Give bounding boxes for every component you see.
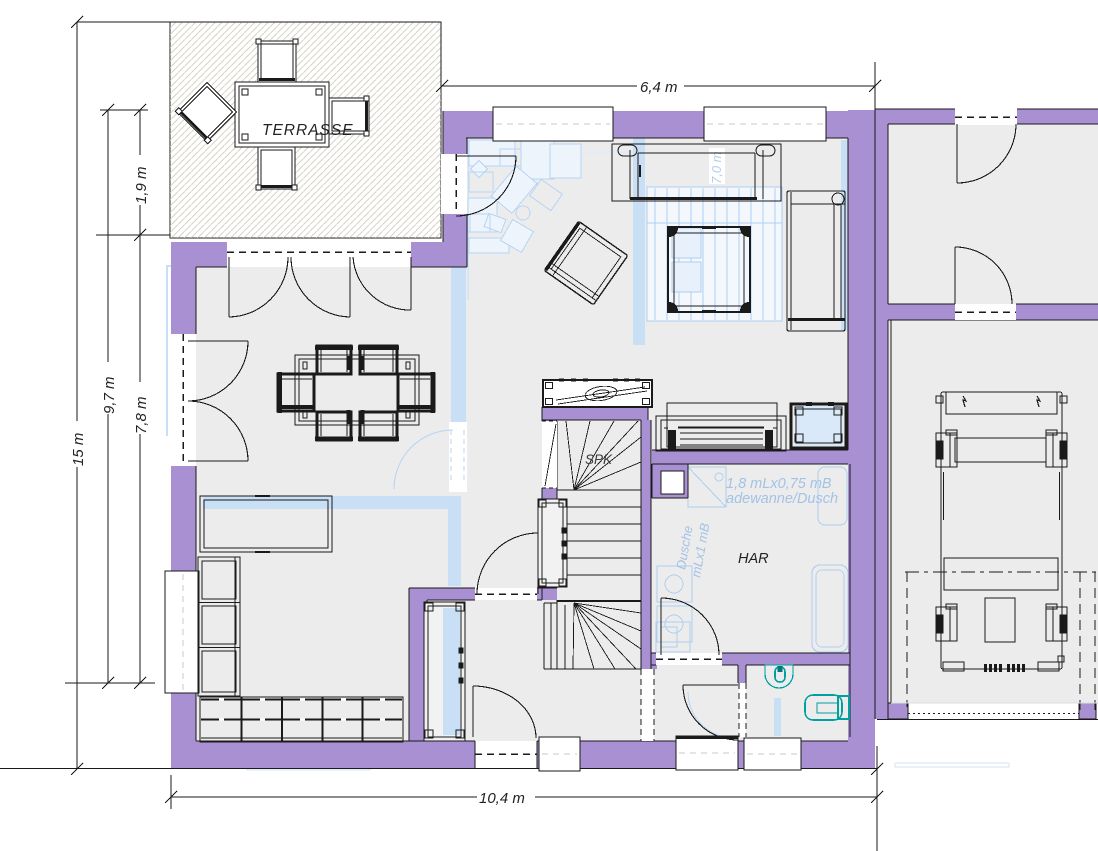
- svg-text:1,8 mLx0,75 mB: 1,8 mLx0,75 mB: [726, 476, 832, 492]
- svg-text:HAR: HAR: [738, 551, 769, 567]
- svg-text:adewanne/Dusch: adewanne/Dusch: [726, 491, 838, 507]
- svg-text:6,4 m: 6,4 m: [640, 79, 678, 96]
- svg-text:7,8 m: 7,8 m: [133, 396, 150, 434]
- svg-text:9,7 m: 9,7 m: [101, 376, 118, 414]
- svg-text:SPK: SPK: [585, 452, 613, 467]
- svg-text:7,0 m: 7,0 m: [709, 151, 724, 184]
- svg-text:TERRASSE: TERRASSE: [262, 122, 354, 139]
- svg-text:1,9 m: 1,9 m: [133, 166, 150, 204]
- svg-text:15 m: 15 m: [70, 433, 87, 466]
- svg-text:10,4 m: 10,4 m: [479, 790, 525, 807]
